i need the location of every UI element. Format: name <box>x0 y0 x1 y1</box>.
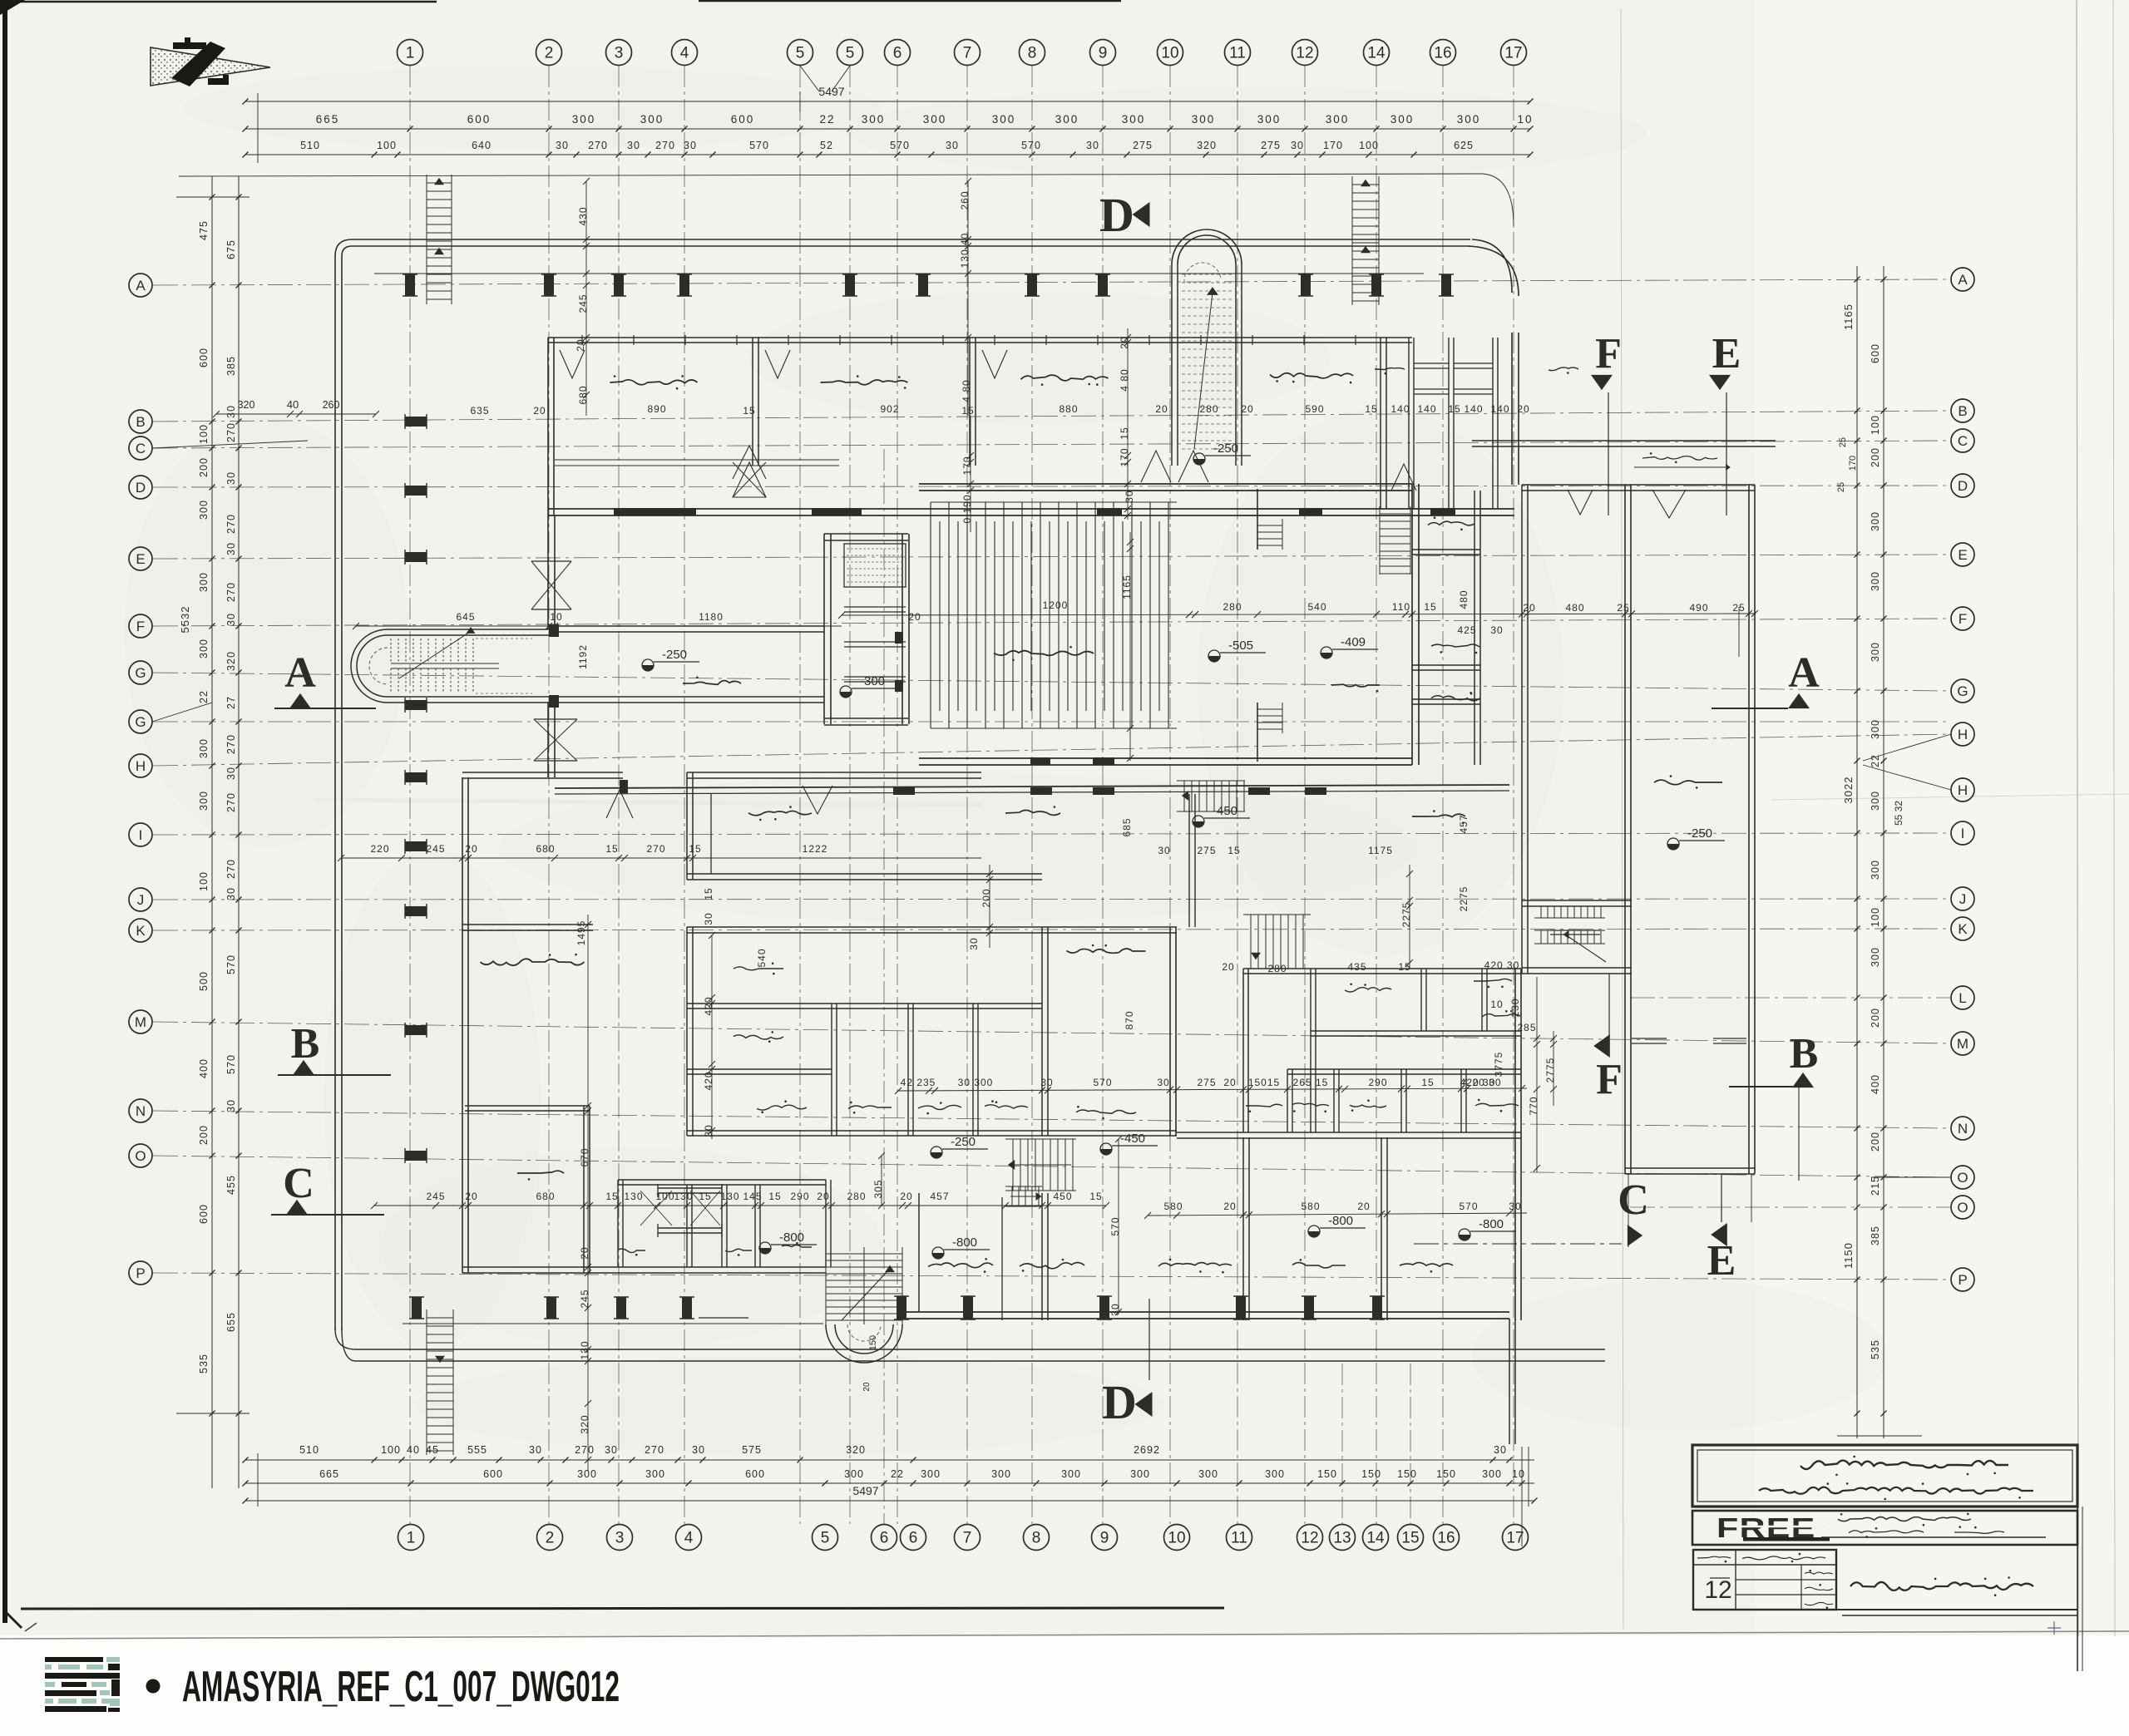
svg-text:F: F <box>136 619 145 634</box>
svg-text:N: N <box>136 1103 146 1119</box>
svg-text:20: 20 <box>1357 1201 1370 1212</box>
svg-text:4: 4 <box>680 45 689 62</box>
svg-text:570: 570 <box>1021 140 1041 151</box>
svg-text:G: G <box>1957 683 1968 699</box>
svg-text:685: 685 <box>1121 817 1133 836</box>
svg-text:1192: 1192 <box>577 644 589 669</box>
svg-text:200: 200 <box>198 457 210 477</box>
svg-text:20: 20 <box>465 843 477 855</box>
svg-text:K: K <box>136 923 146 939</box>
svg-text:M: M <box>1957 1036 1968 1052</box>
svg-text:270: 270 <box>225 734 237 754</box>
svg-text:30: 30 <box>1086 140 1099 151</box>
svg-text:880: 880 <box>1059 403 1078 415</box>
svg-text:0 190: 0 190 <box>961 494 973 523</box>
svg-text:570: 570 <box>890 140 910 151</box>
svg-text:435: 435 <box>1347 961 1366 973</box>
svg-text:O: O <box>135 1148 146 1164</box>
svg-text:300: 300 <box>862 113 886 126</box>
svg-text:305: 305 <box>872 1179 884 1198</box>
svg-text:13: 13 <box>1333 1530 1351 1547</box>
svg-text:D: D <box>1099 188 1134 242</box>
svg-text:-800: -800 <box>1479 1217 1504 1231</box>
svg-text:22: 22 <box>891 1468 904 1480</box>
svg-text:290: 290 <box>1368 1077 1387 1088</box>
svg-text:42 235: 42 235 <box>901 1077 936 1088</box>
svg-text:140: 140 <box>1464 403 1483 415</box>
svg-text:20: 20 <box>1523 602 1535 614</box>
svg-text:20: 20 <box>575 338 586 351</box>
svg-text:480: 480 <box>1458 589 1470 609</box>
svg-text:300: 300 <box>1198 1468 1218 1480</box>
svg-text:16: 16 <box>1434 45 1451 62</box>
svg-text:510: 510 <box>300 140 320 151</box>
svg-text:680: 680 <box>577 385 589 404</box>
svg-text:457: 457 <box>1458 814 1470 833</box>
svg-text:245: 245 <box>579 1289 590 1308</box>
svg-text:300: 300 <box>1482 1468 1502 1480</box>
svg-text:-250: -250 <box>1687 826 1712 841</box>
svg-text:540: 540 <box>756 948 768 967</box>
svg-text:300: 300 <box>1055 113 1079 126</box>
svg-text:P: P <box>136 1265 145 1281</box>
svg-text:200: 200 <box>1870 1008 1881 1028</box>
svg-text:635: 635 <box>470 405 489 417</box>
svg-text:20: 20 <box>1223 1077 1236 1088</box>
svg-text:30: 30 <box>1291 140 1304 151</box>
svg-text:11: 11 <box>1231 1530 1247 1547</box>
svg-text:600: 600 <box>198 348 210 367</box>
svg-text:25: 25 <box>1617 602 1629 614</box>
svg-text:10: 10 <box>1161 45 1178 62</box>
svg-text:100: 100 <box>655 1191 674 1202</box>
svg-text:30: 30 <box>703 1124 714 1137</box>
svg-text:10: 10 <box>1168 1530 1185 1547</box>
svg-text:H: H <box>1958 782 1968 798</box>
svg-text:2: 2 <box>546 1530 555 1547</box>
svg-text:300: 300 <box>1457 113 1481 126</box>
svg-text:300: 300 <box>1257 113 1282 126</box>
svg-text:245: 245 <box>426 1191 445 1202</box>
svg-text:270: 270 <box>225 514 237 534</box>
svg-text:I: I <box>1961 826 1965 841</box>
svg-text:A: A <box>284 649 316 697</box>
svg-text:890: 890 <box>647 403 666 415</box>
svg-text:275: 275 <box>1261 140 1281 151</box>
svg-text:130: 130 <box>674 1191 693 1202</box>
svg-text:17: 17 <box>1504 45 1522 62</box>
svg-text:16: 16 <box>1437 1530 1455 1547</box>
svg-text:260: 260 <box>959 190 971 210</box>
svg-text:290: 290 <box>790 1191 809 1202</box>
svg-text:170: 170 <box>1848 456 1858 471</box>
svg-text:F: F <box>1959 611 1967 627</box>
svg-text:E: E <box>1712 330 1741 377</box>
svg-text:275: 275 <box>1197 845 1216 856</box>
svg-text:280: 280 <box>1223 601 1242 613</box>
svg-text:200: 200 <box>981 888 992 907</box>
svg-text:130 40: 130 40 <box>959 233 971 269</box>
svg-text:30: 30 <box>1158 845 1170 856</box>
svg-text:655: 655 <box>225 1312 237 1332</box>
svg-text:2275: 2275 <box>1400 902 1412 928</box>
svg-text:14: 14 <box>1367 45 1386 62</box>
svg-text:300: 300 <box>1326 113 1350 126</box>
svg-text:M: M <box>135 1014 146 1030</box>
svg-text:B: B <box>1958 403 1967 419</box>
svg-text:A: A <box>1958 272 1968 288</box>
svg-text:G: G <box>135 665 146 681</box>
svg-text:675: 675 <box>225 239 237 259</box>
svg-text:52: 52 <box>820 140 833 151</box>
svg-text:140: 140 <box>1391 403 1410 415</box>
svg-text:600: 600 <box>467 113 491 126</box>
svg-text:-505: -505 <box>1228 639 1253 653</box>
svg-text:300: 300 <box>1870 719 1881 739</box>
svg-text:4 80: 4 80 <box>961 379 972 402</box>
svg-text:15: 15 <box>743 405 755 417</box>
svg-text:1: 1 <box>406 45 415 62</box>
svg-text:420 30: 420 30 <box>1484 959 1520 971</box>
svg-text:30: 30 <box>225 542 237 555</box>
svg-text:O: O <box>1957 1170 1968 1186</box>
svg-text:12: 12 <box>1301 1530 1318 1547</box>
svg-text:-250: -250 <box>662 648 687 662</box>
svg-text:30: 30 <box>605 1444 618 1456</box>
svg-text:665: 665 <box>316 113 340 126</box>
svg-text:570: 570 <box>749 140 769 151</box>
svg-text:130: 130 <box>579 1340 590 1359</box>
svg-text:30: 30 <box>1490 624 1503 636</box>
svg-text:450: 450 <box>1053 1191 1072 1202</box>
svg-text:12: 12 <box>1296 45 1313 62</box>
svg-text:22: 22 <box>819 113 835 126</box>
svg-text:17: 17 <box>1506 1530 1524 1547</box>
svg-text:20: 20 <box>579 1246 590 1259</box>
svg-text:100: 100 <box>1359 140 1379 151</box>
svg-text:570: 570 <box>225 1054 237 1074</box>
svg-text:220: 220 <box>370 843 389 855</box>
svg-text:570: 570 <box>1109 1216 1121 1235</box>
svg-text:30: 30 <box>1157 1077 1169 1088</box>
svg-text:1165: 1165 <box>1121 575 1133 599</box>
svg-text:2775: 2775 <box>1544 1058 1556 1083</box>
svg-text:580: 580 <box>1163 1201 1183 1212</box>
svg-text:245: 245 <box>426 843 445 855</box>
svg-text:280: 280 <box>1267 963 1287 974</box>
svg-text:F: F <box>1595 330 1622 377</box>
svg-text:1150: 1150 <box>1842 1242 1855 1269</box>
svg-text:535: 535 <box>198 1354 210 1374</box>
svg-text:30: 30 <box>692 1444 705 1456</box>
svg-text:20: 20 <box>465 1191 477 1202</box>
svg-text:265 15: 265 15 <box>1293 1077 1329 1088</box>
svg-text:300: 300 <box>1265 1468 1285 1480</box>
svg-text:300: 300 <box>1122 113 1146 126</box>
svg-text:270: 270 <box>575 1444 595 1456</box>
svg-text:420: 420 <box>703 1071 714 1090</box>
svg-text:665: 665 <box>319 1468 339 1480</box>
svg-text:770: 770 <box>1528 1096 1539 1115</box>
svg-text:40: 40 <box>407 1444 420 1456</box>
svg-text:100: 100 <box>1870 415 1881 435</box>
svg-text:385: 385 <box>1870 1226 1881 1245</box>
svg-text:300: 300 <box>1130 1468 1150 1480</box>
svg-text:645: 645 <box>456 611 475 623</box>
svg-text:300: 300 <box>198 738 210 758</box>
svg-text:100: 100 <box>1870 907 1881 927</box>
svg-text:4 80: 4 80 <box>1119 368 1130 391</box>
svg-text:P: P <box>1958 1272 1967 1288</box>
svg-text:1: 1 <box>407 1530 416 1547</box>
svg-text:6: 6 <box>893 45 902 62</box>
svg-text:30: 30 <box>225 887 237 900</box>
svg-text:300: 300 <box>1391 113 1415 126</box>
svg-text:-250: -250 <box>951 1135 976 1149</box>
svg-text:E: E <box>1958 547 1967 563</box>
svg-text:2: 2 <box>545 45 554 62</box>
svg-text:-250: -250 <box>1213 441 1238 456</box>
svg-text:425: 425 <box>1457 624 1476 636</box>
svg-text:600: 600 <box>1870 343 1881 363</box>
svg-text:20: 20 <box>533 405 546 417</box>
svg-text:555: 555 <box>467 1444 487 1456</box>
svg-text:15015: 15015 <box>1248 1077 1280 1088</box>
svg-text:-800: -800 <box>779 1230 804 1245</box>
svg-text:5: 5 <box>846 45 855 62</box>
svg-text:5: 5 <box>796 45 805 62</box>
svg-text:902: 902 <box>880 403 899 415</box>
svg-text:640: 640 <box>472 140 491 151</box>
svg-text:300: 300 <box>1870 860 1881 880</box>
svg-text:30: 30 <box>1040 1077 1053 1088</box>
svg-text:100: 100 <box>198 424 210 444</box>
svg-text:20: 20 <box>1119 336 1130 348</box>
svg-text:3022: 3022 <box>1842 777 1855 804</box>
svg-text:20: 20 <box>1517 403 1529 415</box>
svg-text:30: 30 <box>1509 1201 1521 1212</box>
svg-text:130: 130 <box>720 1191 739 1202</box>
svg-text:15: 15 <box>768 1191 781 1202</box>
svg-text:15: 15 <box>605 843 618 855</box>
svg-text:670: 670 <box>579 1147 590 1166</box>
svg-text:C: C <box>1958 433 1968 449</box>
svg-text:100: 100 <box>198 871 210 891</box>
svg-text:22: 22 <box>1870 754 1881 767</box>
svg-text:30: 30 <box>627 140 640 151</box>
svg-text:H: H <box>1958 727 1968 742</box>
svg-text:30: 30 <box>556 140 569 151</box>
svg-text:150: 150 <box>1317 1468 1337 1480</box>
svg-text:170: 170 <box>1119 447 1130 466</box>
svg-text:-800: -800 <box>952 1235 977 1250</box>
svg-text:170: 170 <box>961 456 973 475</box>
svg-text:1200: 1200 <box>1043 599 1069 611</box>
svg-text:10: 10 <box>1512 1468 1525 1480</box>
svg-text:300: 300 <box>923 113 947 126</box>
svg-text:7: 7 <box>963 45 972 62</box>
svg-text:D: D <box>136 480 146 496</box>
svg-text:300: 300 <box>1870 947 1881 967</box>
svg-text:20: 20 <box>862 1382 872 1392</box>
svg-text:430: 430 <box>577 206 589 225</box>
svg-text:40: 40 <box>287 398 299 411</box>
svg-text:15: 15 <box>1421 1077 1434 1088</box>
svg-text:320: 320 <box>238 399 255 411</box>
svg-text:420: 420 <box>703 996 714 1015</box>
svg-text:400: 400 <box>198 1058 210 1078</box>
svg-text:20: 20 <box>1223 1201 1236 1212</box>
svg-text:270: 270 <box>225 422 237 442</box>
svg-text:15: 15 <box>1401 1530 1419 1547</box>
svg-text:20: 20 <box>1155 403 1168 415</box>
svg-text:15: 15 <box>1228 845 1240 856</box>
svg-text:55 32: 55 32 <box>1893 801 1904 826</box>
svg-text:15: 15 <box>961 405 974 417</box>
svg-text:30: 30 <box>946 140 959 151</box>
svg-text:20: 20 <box>817 1191 829 1202</box>
svg-text:45: 45 <box>426 1444 439 1456</box>
svg-text:15: 15 <box>1119 427 1130 439</box>
svg-text:30: 30 <box>703 912 714 925</box>
svg-text:600: 600 <box>731 113 755 126</box>
svg-text:280: 280 <box>1199 403 1218 415</box>
svg-text:5497: 5497 <box>818 85 844 98</box>
svg-text:490: 490 <box>1689 602 1708 614</box>
svg-text:7: 7 <box>963 1530 972 1547</box>
svg-text:100: 100 <box>377 140 397 151</box>
svg-text:270: 270 <box>588 140 608 151</box>
svg-text:1222: 1222 <box>803 843 828 855</box>
svg-text:H: H <box>136 758 146 774</box>
svg-text:-409: -409 <box>1341 635 1366 649</box>
svg-text:30: 30 <box>1494 1444 1507 1456</box>
svg-text:9: 9 <box>1099 45 1108 62</box>
svg-text:15: 15 <box>1424 601 1436 613</box>
svg-text:C: C <box>136 441 146 456</box>
svg-text:30: 30 <box>1109 1303 1121 1315</box>
svg-text:25: 25 <box>1836 482 1846 492</box>
svg-text:200: 200 <box>1870 447 1881 467</box>
svg-text:475: 475 <box>198 220 210 240</box>
svg-text:300: 300 <box>844 1468 864 1480</box>
svg-text:245: 245 <box>577 293 589 313</box>
svg-text:25: 25 <box>1732 602 1745 614</box>
svg-text:300: 300 <box>1870 511 1881 531</box>
svg-text:5532: 5532 <box>179 606 191 634</box>
svg-text:270: 270 <box>225 792 237 812</box>
svg-text:E: E <box>1707 1237 1736 1285</box>
svg-text:300: 300 <box>991 1468 1011 1480</box>
svg-text:15: 15 <box>1398 961 1410 973</box>
svg-text:15: 15 <box>689 843 701 855</box>
svg-text:130: 130 <box>624 1191 643 1202</box>
svg-text:400: 400 <box>1870 1074 1881 1094</box>
svg-text:140: 140 <box>1490 403 1509 415</box>
svg-text:-800: -800 <box>1328 1214 1353 1228</box>
svg-text:510: 510 <box>299 1444 319 1456</box>
svg-text:3: 3 <box>615 45 624 62</box>
svg-text:6: 6 <box>880 1530 889 1547</box>
svg-text:625: 625 <box>1454 140 1474 151</box>
svg-text:535: 535 <box>1870 1339 1881 1359</box>
svg-text:B: B <box>1790 1030 1819 1078</box>
svg-text:30 300: 30 300 <box>958 1077 994 1088</box>
svg-text:B: B <box>291 1020 320 1068</box>
svg-text:230: 230 <box>1509 998 1521 1017</box>
svg-text:200: 200 <box>1870 1132 1881 1152</box>
svg-text:30: 30 <box>529 1444 542 1456</box>
svg-text:15: 15 <box>605 1191 618 1202</box>
svg-text:420 30: 420 30 <box>1460 1077 1496 1088</box>
svg-text:150: 150 <box>1436 1468 1456 1480</box>
svg-text:680: 680 <box>536 843 555 855</box>
svg-text:30: 30 <box>225 767 237 780</box>
svg-text:300: 300 <box>1870 571 1881 591</box>
svg-text:L: L <box>1959 990 1966 1006</box>
svg-text:300: 300 <box>198 639 210 658</box>
svg-text:300: 300 <box>1870 791 1881 811</box>
svg-text:300: 300 <box>577 1468 597 1480</box>
svg-text:300: 300 <box>198 572 210 592</box>
svg-text:300: 300 <box>198 791 210 811</box>
svg-text:25: 25 <box>1838 437 1848 447</box>
svg-text:3: 3 <box>615 1530 625 1547</box>
svg-text:300: 300 <box>1061 1468 1081 1480</box>
svg-text:275: 275 <box>1133 140 1153 151</box>
svg-text:C: C <box>283 1160 314 1207</box>
svg-text:680: 680 <box>536 1191 555 1202</box>
svg-text:30: 30 <box>225 405 237 418</box>
svg-text:N: N <box>1958 1121 1968 1137</box>
svg-text:320: 320 <box>225 651 237 671</box>
svg-text:30: 30 <box>225 1099 237 1112</box>
svg-text:275: 275 <box>1197 1077 1216 1088</box>
svg-text:385: 385 <box>225 356 237 376</box>
svg-text:15: 15 <box>1365 403 1377 415</box>
svg-text:600: 600 <box>483 1468 503 1480</box>
svg-text:1175: 1175 <box>1368 845 1393 856</box>
svg-text:870: 870 <box>1124 1010 1135 1029</box>
svg-text:150: 150 <box>1361 1468 1381 1480</box>
svg-text:20: 20 <box>908 611 921 623</box>
svg-text:9: 9 <box>1100 1530 1109 1547</box>
svg-text:12: 12 <box>1704 1576 1731 1604</box>
svg-text:540: 540 <box>1307 601 1326 613</box>
svg-text:575: 575 <box>742 1444 762 1456</box>
svg-text:J: J <box>1959 891 1967 907</box>
svg-text:A: A <box>1788 649 1820 697</box>
svg-text:480: 480 <box>1565 602 1584 614</box>
svg-text:270: 270 <box>225 582 237 602</box>
svg-text:E: E <box>136 551 145 567</box>
svg-text:600: 600 <box>745 1468 765 1480</box>
svg-text:3775: 3775 <box>1493 1052 1504 1078</box>
svg-text:30: 30 <box>225 613 237 626</box>
svg-text:G: G <box>135 714 146 730</box>
svg-text:14: 14 <box>1366 1530 1385 1547</box>
svg-text:170: 170 <box>1323 140 1343 151</box>
svg-text:600: 600 <box>198 1204 210 1224</box>
svg-text:110: 110 <box>1392 601 1410 613</box>
svg-text:300: 300 <box>198 500 210 520</box>
svg-text:300: 300 <box>1192 113 1216 126</box>
svg-text:145: 145 <box>743 1191 762 1202</box>
svg-text:20: 20 <box>1222 961 1234 973</box>
svg-text:500: 500 <box>198 971 210 991</box>
svg-text:570: 570 <box>1093 1077 1112 1088</box>
svg-text:B: B <box>136 414 145 430</box>
